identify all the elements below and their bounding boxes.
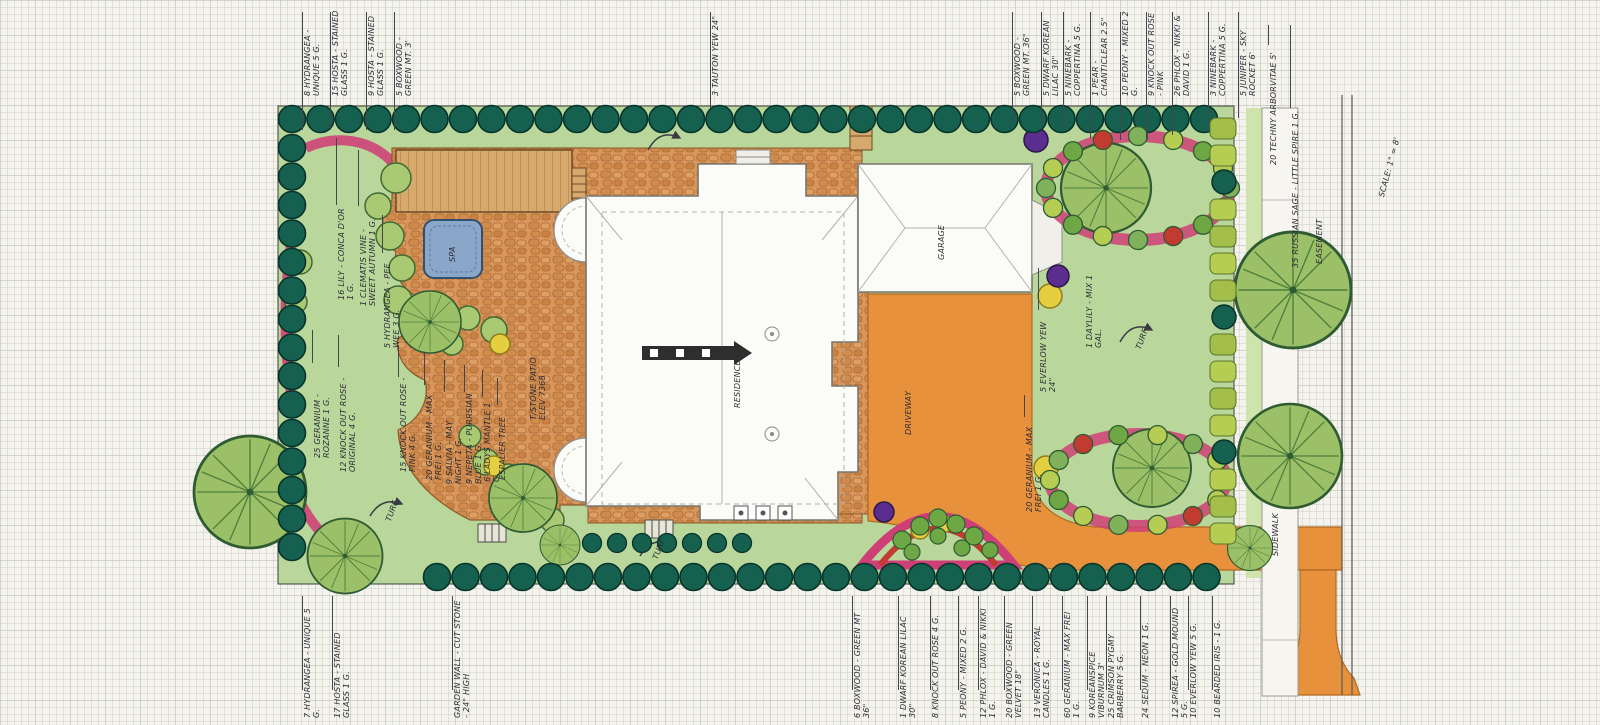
leader-line — [398, 345, 399, 377]
plant-annotation: EASEMENT — [1316, 189, 1325, 264]
plant-annotation: 16 LILY - CONCA D'OR 1 G. — [338, 205, 356, 300]
plant-annotation: 12 KNOCK OUT ROSE - ORIGINAL 4 G. — [340, 367, 358, 472]
plant-annotation: 10 BEARDED IRIS - 1 G. — [1214, 606, 1223, 718]
plant-annotation: 10 EVERLOW YEW 5 G. — [1190, 606, 1199, 718]
plant-annotation: 9 HOSTA - STAINED GLASS 1 G. — [368, 8, 386, 96]
leader-line — [382, 215, 383, 253]
plant-annotation: SCALE: 1" = 8' — [1378, 119, 1407, 199]
plant-annotation: 20 GERANIUM - MAX FREI 1 G. — [1026, 417, 1044, 512]
plant-annotation: 13 VERONICA - ROYAL CANDLES 1 G. — [1034, 606, 1052, 718]
plant-annotation: 1 PEAR - CHANTICLEAR 2.5" — [1092, 8, 1110, 96]
plant-annotation: 3 NINEBARK - COPPERTINA 5 G. — [1210, 8, 1228, 96]
leader-line — [336, 138, 337, 205]
plant-annotation: 60 GERANIUM - MAX FREI 1 G. — [1064, 606, 1082, 718]
plant-annotation: 5 HYDRANGEA - PEE WEE 3 G. — [384, 253, 402, 348]
plant-annotation: 25 GERANIUM - ROZANNE 1 G. — [314, 363, 332, 458]
plant-annotation: 9 NEPETA - PURRSIAN BLUE 1 G. — [466, 392, 484, 484]
plant-annotation: 15 HOSTA - STAINED GLASS 1 G. — [332, 8, 350, 96]
plant-annotation: 5 JUNIPER - SKY ROCKET 6' — [1240, 8, 1258, 96]
plant-annotation: 8 HYDRANGEA - UNIQUE 5 G. — [304, 8, 322, 96]
plant-annotation: 8 KNOCK OUT ROSE 4 G. — [932, 606, 941, 718]
plant-annotation: 10 PEONY - MIXED 2 G. — [1122, 8, 1140, 96]
plant-annotation: 1 DAYLILY - MIX 1 GAL. — [1086, 263, 1104, 348]
plant-annotation: TURF — [1135, 320, 1154, 351]
plant-annotation: TURF — [652, 530, 671, 561]
plant-annotation: 5 EVERLOW YEW 24" — [1040, 310, 1058, 392]
plant-annotation: DRIVEWAY — [905, 373, 914, 435]
leader-line — [1038, 268, 1039, 310]
leader-line — [1268, 25, 1269, 45]
plant-annotation: 20 TECHNY ARBORVITAE 5' — [1270, 45, 1279, 165]
plant-annotation: 35 RUSSIAN SAGE - LITTLE SPIRE 1 G. — [1292, 108, 1301, 268]
plant-annotation: 15 KNOCK OUT ROSE - PINK 4 G. — [400, 377, 418, 472]
plant-annotation: 1 DWARF KOREAN LILAC 30" — [900, 606, 918, 718]
plant-annotation: RESIDENCE — [734, 338, 743, 408]
plant-annotation: 20 GERANIUM - MAX FREI 1 G. — [426, 385, 444, 480]
plant-annotation: GARDEN WALL - CUT STONE - 24" HIGH — [454, 600, 472, 718]
plant-annotation: 12 PHLOX - DAVID & NIKKI 1 G. — [980, 606, 998, 718]
leader-line — [497, 378, 498, 405]
plant-annotation: 5 BOXWOOD - GREEN MT. 3' — [396, 8, 414, 96]
plant-annotation: 5 DWARF KOREAN LILAC 30" — [1043, 8, 1061, 96]
plant-annotation: 24 SEDUM - NEON 1 G. — [1142, 606, 1151, 718]
plant-annotation: 20 BOXWOOD - GREEN VELVET 18" — [1006, 606, 1024, 718]
leader-line — [444, 360, 445, 392]
plant-annotation: 25 CRIMSON PYGMY BARBERRY 5 G. — [1108, 606, 1126, 718]
plant-annotation: 5 PEONY - MIXED 2 G. — [960, 606, 969, 718]
plant-annotation: 6 BOXWOOD - GREEN MT 36" — [854, 606, 872, 718]
plant-annotation: 5 BOXWOOD - GREEN MT. 36" — [1014, 8, 1032, 96]
leader-line — [1024, 395, 1025, 417]
annotation-layer: 8 HYDRANGEA - UNIQUE 5 G.15 HOSTA - STAI… — [0, 0, 1600, 725]
plant-annotation: 3 TAUTON YEW 24" — [712, 8, 721, 96]
plant-annotation: 7 HYDRANGEA - UNIQUE 5 G. — [304, 606, 322, 718]
leader-line — [338, 335, 339, 367]
leader-line — [358, 150, 359, 206]
leader-line — [464, 365, 465, 392]
plant-annotation: T/STONE PATIO ELEV 7368 — [530, 340, 548, 420]
plant-annotation: 9 SALVIA - MAY NIGHT 1 G. — [446, 392, 464, 484]
plant-annotation: 17 HOSTA - STAINED GLASS 1 G. — [334, 606, 352, 718]
landscape-plan-sheet: 8 HYDRANGEA - UNIQUE 5 G.15 HOSTA - STAI… — [0, 0, 1600, 725]
plant-annotation: 5 NINEBARK - COPPERTINA 5 G. — [1065, 8, 1083, 96]
plant-annotation: 9 KNOCK OUT ROSE - PINK — [1148, 8, 1166, 96]
plant-annotation: 1 CLEMATIS VINE - SWEET AUTUMN 1 G. — [360, 206, 378, 306]
leader-line — [1290, 25, 1291, 108]
leader-line — [312, 330, 313, 363]
plant-annotation: ESPALIER TREE — [499, 405, 508, 480]
leader-line — [424, 352, 425, 385]
plant-annotation: 26 PHLOX - NIKKI & DAVID 1 G. — [1174, 8, 1192, 96]
plant-annotation: SIDEWALK — [1272, 486, 1281, 556]
leader-line — [482, 370, 483, 397]
plant-annotation: TURF — [385, 492, 404, 523]
plant-annotation: GARAGE — [938, 205, 947, 260]
plant-annotation: SPA — [449, 232, 458, 262]
plant-annotation: 9 KOREANSPICE VIBURNUM 3' — [1089, 606, 1107, 718]
